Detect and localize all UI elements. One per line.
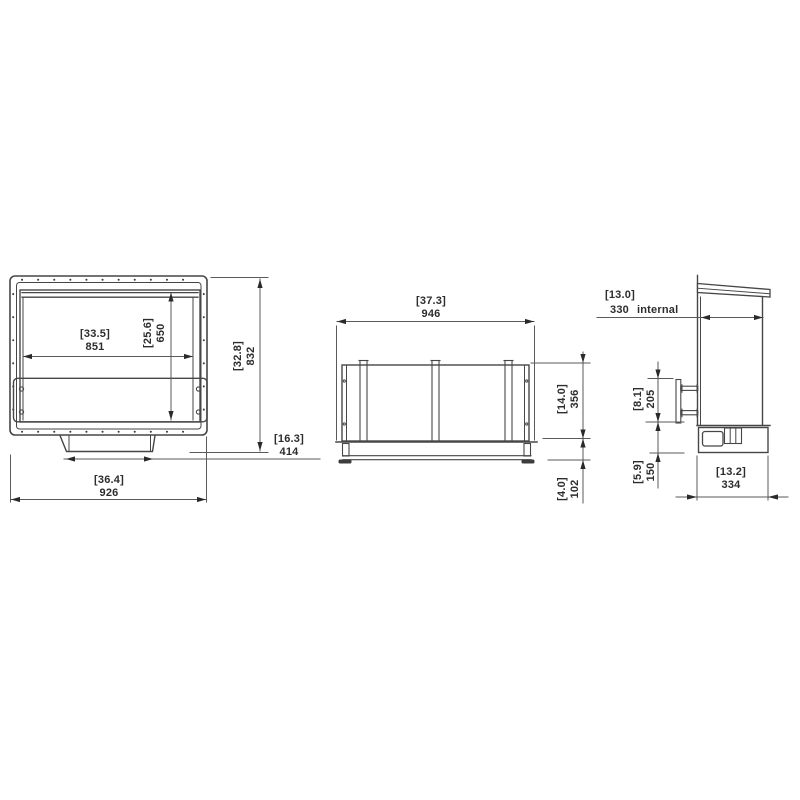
stiffeners xyxy=(359,361,513,442)
dim-side-base-depth: [13.2] 334 xyxy=(716,466,746,492)
dim-side-lower-height-inches: [5.9] xyxy=(632,460,645,484)
rear-view-geometry xyxy=(336,361,537,464)
dim-side-internal-depth-suffix: internal xyxy=(637,304,678,317)
screw-dots xyxy=(22,280,198,432)
front-view-arrows xyxy=(11,279,263,502)
dim-side-bracket-height-mm: 205 xyxy=(645,390,658,409)
side-view-geometry xyxy=(676,276,770,453)
dim-front-overall-width-inches: [36.4] xyxy=(94,474,124,487)
dim-front-tray-width: [16.3] 414 xyxy=(274,433,304,459)
side-view-dimensions xyxy=(597,318,788,501)
dim-front-tray-width-mm: 414 xyxy=(280,446,299,459)
dim-front-opening-width-inches: [33.5] xyxy=(80,328,110,341)
dim-front-opening-height: [25.6] 650 xyxy=(142,318,168,348)
dim-side-base-depth-mm: 334 xyxy=(722,479,741,492)
dim-rear-base-height: [4.0] 102 xyxy=(556,477,582,501)
dim-side-bracket-height-inches: [8.1] xyxy=(632,387,645,411)
dim-rear-width-inches: [37.3] xyxy=(416,295,446,308)
dim-front-opening-width-mm: 851 xyxy=(86,341,105,354)
dim-side-internal-depth-inches: [13.0] xyxy=(605,289,635,302)
dim-front-overall-height-inches: [32.8] xyxy=(232,341,245,371)
dim-front-opening-height-mm: 650 xyxy=(155,324,168,343)
dim-front-overall-width-mm: 926 xyxy=(100,487,119,500)
dim-side-internal-depth-mm: 330 xyxy=(610,304,629,317)
dim-side-lower-height: [5.9] 150 xyxy=(632,460,658,484)
drawing-canvas: [33.5] 851 [25.6] 650 [32.8] 832 [16.3] … xyxy=(0,0,800,800)
front-view-dimensions xyxy=(11,278,321,503)
dim-front-overall-height: [32.8] 832 xyxy=(232,341,258,371)
dim-side-bracket-height: [8.1] 205 xyxy=(632,387,658,411)
dim-rear-panel-height: [14.0] 356 xyxy=(556,384,582,414)
dim-rear-panel-height-mm: 356 xyxy=(569,390,582,409)
dim-rear-base-height-inches: [4.0] xyxy=(556,477,569,501)
rear-view-arrows xyxy=(337,319,586,469)
dim-front-overall-width: [36.4] 926 xyxy=(94,474,124,500)
dim-front-tray-width-inches: [16.3] xyxy=(274,433,304,446)
dim-front-opening-width: [33.5] 851 xyxy=(80,328,110,354)
technical-drawing xyxy=(0,0,800,800)
front-view-geometry xyxy=(10,276,207,452)
dim-front-opening-height-inches: [25.6] xyxy=(142,318,155,348)
dim-rear-panel-height-inches: [14.0] xyxy=(556,384,569,414)
rear-view-dimensions xyxy=(337,322,591,504)
dim-side-lower-height-mm: 150 xyxy=(645,463,658,482)
dim-front-overall-height-mm: 832 xyxy=(245,347,258,366)
dim-rear-width-mm: 946 xyxy=(422,308,441,321)
dim-rear-base-height-mm: 102 xyxy=(569,480,582,499)
dim-rear-width: [37.3] 946 xyxy=(416,295,446,321)
dim-side-base-depth-inches: [13.2] xyxy=(716,466,746,479)
